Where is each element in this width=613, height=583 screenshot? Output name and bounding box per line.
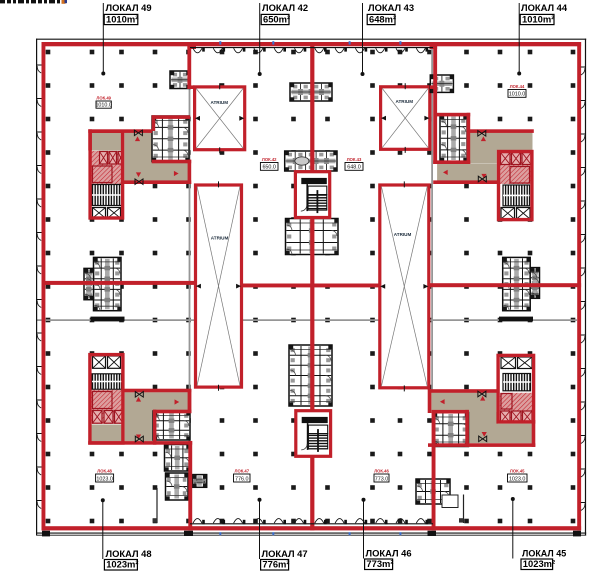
svg-text:ЛОКАЛ 49: ЛОКАЛ 49 [106, 2, 152, 13]
svg-text:ATRIUM: ATRIUM [394, 232, 412, 237]
svg-text:773m²: 773m² [366, 558, 393, 569]
svg-text:ЛОКАЛ 47: ЛОКАЛ 47 [262, 548, 308, 559]
svg-text:1010.0: 1010.0 [509, 92, 526, 98]
svg-text:650m²: 650m² [263, 14, 290, 25]
svg-text:ЛОКАЛ 44: ЛОКАЛ 44 [521, 2, 568, 13]
svg-text:ЛОКАЛ 45: ЛОКАЛ 45 [522, 549, 566, 559]
svg-text:ЛОК.45: ЛОК.45 [510, 468, 525, 473]
svg-text:1010m²: 1010m² [522, 14, 554, 25]
svg-text:ЛОКАЛ 46: ЛОКАЛ 46 [366, 548, 412, 559]
svg-text:1023.0: 1023.0 [509, 476, 526, 482]
svg-text:ЛОК.44: ЛОК.44 [510, 84, 525, 89]
svg-text:ЛОКАЛ 43: ЛОКАЛ 43 [368, 2, 414, 13]
svg-text:ATRIUM: ATRIUM [396, 99, 414, 104]
svg-text:ЛОКАЛ 48: ЛОКАЛ 48 [106, 548, 152, 559]
svg-text:776m²: 776m² [262, 559, 289, 570]
svg-text:ЛОК.49: ЛОК.49 [96, 95, 111, 100]
svg-text:773.0: 773.0 [375, 476, 389, 482]
svg-text:1010m²: 1010m² [106, 14, 138, 25]
svg-text:ATRIUM: ATRIUM [211, 100, 229, 105]
svg-text:1023m²: 1023m² [523, 558, 555, 569]
svg-text:650.0: 650.0 [262, 165, 276, 171]
svg-text:648m²: 648m² [369, 14, 396, 25]
svg-text:ЛОК.48: ЛОК.48 [97, 468, 112, 473]
svg-text:648.0: 648.0 [347, 165, 361, 171]
svg-text:ЛОК.42: ЛОК.42 [262, 157, 277, 162]
svg-text:ATRIUM: ATRIUM [211, 236, 229, 241]
svg-text:776.0: 776.0 [235, 476, 249, 482]
svg-text:ЛОК.46: ЛОК.46 [374, 468, 389, 473]
svg-text:ЛОК.43: ЛОК.43 [347, 157, 362, 162]
svg-text:ЛОК.47: ЛОК.47 [235, 468, 250, 473]
svg-text:1023m²: 1023m² [106, 559, 138, 570]
svg-text:1023.0: 1023.0 [96, 476, 113, 482]
svg-text:1010.0: 1010.0 [95, 103, 112, 109]
svg-text:ЛОКАЛ 42: ЛОКАЛ 42 [262, 2, 308, 13]
